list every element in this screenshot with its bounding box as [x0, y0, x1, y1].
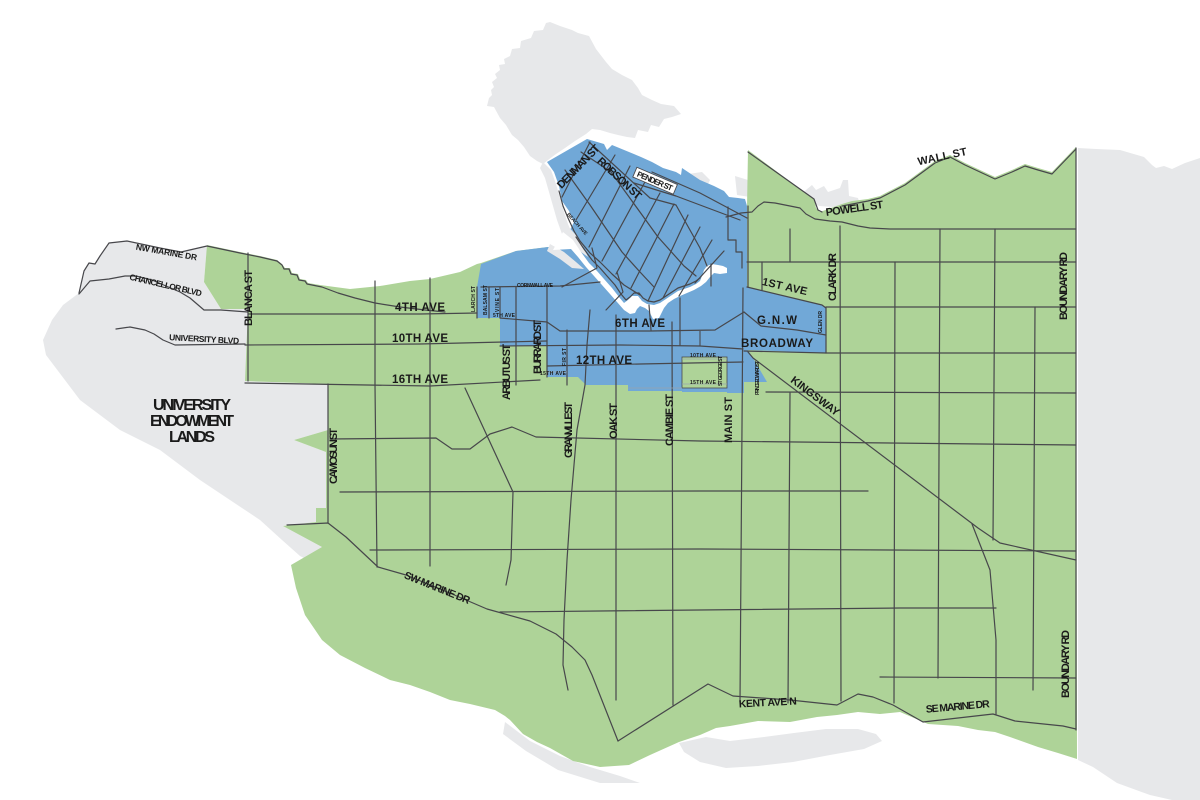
svg-text:G.N.W: G.N.W — [757, 315, 797, 327]
svg-text:ST GEORGE ST: ST GEORGE ST — [718, 356, 724, 386]
svg-text:12TH AVE: 12TH AVE — [576, 355, 632, 367]
svg-text:16TH AVE: 16TH AVE — [392, 374, 448, 386]
svg-text:FIR ST: FIR ST — [562, 348, 568, 366]
svg-text:BLANCA ST: BLANCA ST — [243, 270, 255, 326]
svg-text:VINE ST: VINE ST — [495, 288, 501, 312]
svg-text:OAK ST: OAK ST — [608, 403, 620, 439]
svg-text:CLARK DR: CLARK DR — [827, 253, 839, 301]
svg-text:4TH AVE: 4TH AVE — [395, 302, 445, 314]
svg-text:LANDS: LANDS — [169, 429, 215, 446]
svg-text:ENDOWMENT: ENDOWMENT — [150, 413, 234, 430]
svg-text:CAMBIE ST: CAMBIE ST — [664, 394, 676, 446]
svg-text:BOUNDARY RD: BOUNDARY RD — [1058, 252, 1070, 320]
svg-text:PRINCE EDWARD ST: PRINCE EDWARD ST — [755, 361, 761, 395]
svg-text:15TH AVE: 15TH AVE — [690, 380, 717, 386]
svg-text:CAMOSUN ST: CAMOSUN ST — [328, 428, 340, 484]
svg-text:UNIVERSITY: UNIVERSITY — [153, 397, 231, 414]
svg-text:BROADWAY: BROADWAY — [741, 338, 813, 350]
svg-text:LARCH ST: LARCH ST — [471, 286, 477, 312]
svg-text:6TH AVE: 6TH AVE — [615, 318, 665, 330]
svg-text:GLEN DR: GLEN DR — [818, 311, 824, 333]
svg-text:CORNWALL AVE: CORNWALL AVE — [517, 283, 554, 289]
svg-text:15TH AVE: 15TH AVE — [540, 371, 567, 377]
svg-text:ARBUTUS ST: ARBUTUS ST — [501, 344, 513, 400]
svg-text:GRANVILLE ST: GRANVILLE ST — [563, 402, 575, 458]
svg-text:10TH AVE: 10TH AVE — [690, 353, 717, 359]
svg-text:BOUNDARY RD: BOUNDARY RD — [1060, 630, 1072, 698]
svg-text:5TH AVE: 5TH AVE — [493, 313, 516, 319]
svg-text:BALSAM ST: BALSAM ST — [483, 285, 489, 315]
svg-text:BURRARD ST: BURRARD ST — [532, 320, 544, 374]
svg-text:10TH AVE: 10TH AVE — [392, 333, 448, 345]
svg-text:MAIN ST: MAIN ST — [723, 397, 735, 443]
